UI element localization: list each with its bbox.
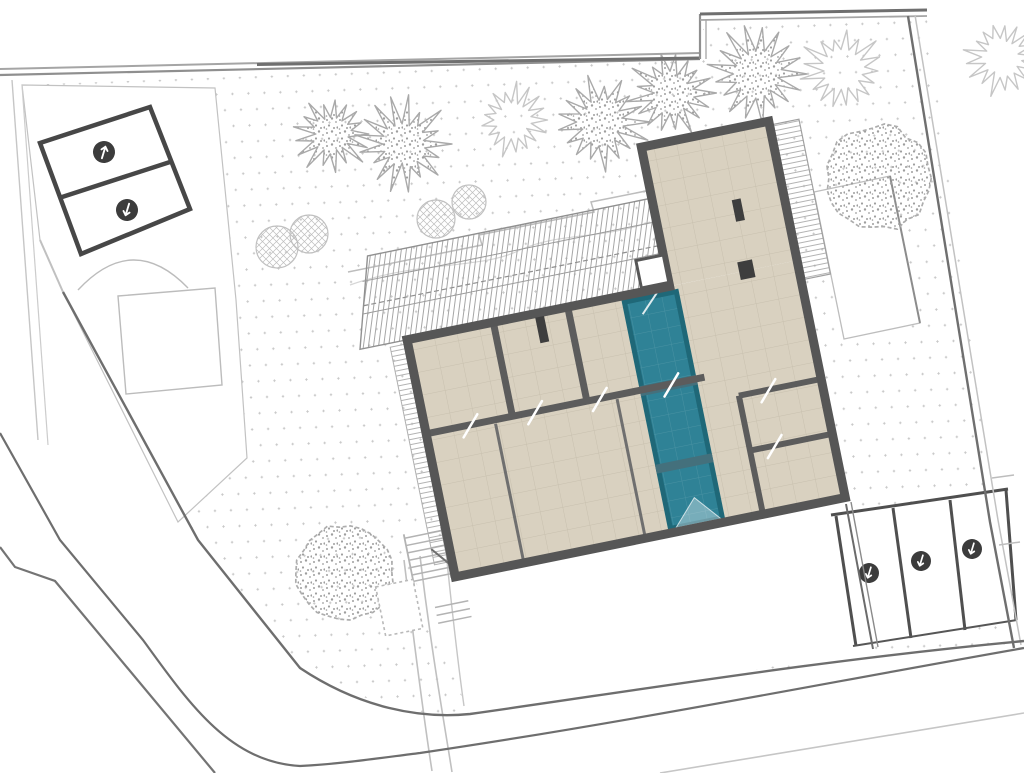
site-plan-canvas: Architectural site plan — ground floor w… <box>0 0 1024 773</box>
crosshatch-shrub <box>452 185 486 219</box>
crosshatch-shrub <box>290 215 328 253</box>
entry-pad <box>118 288 222 394</box>
site-plan-page: Architectural site plan — ground floor w… <box>0 0 1024 773</box>
crosshatch-shrub <box>417 200 455 238</box>
skylight <box>636 255 669 288</box>
